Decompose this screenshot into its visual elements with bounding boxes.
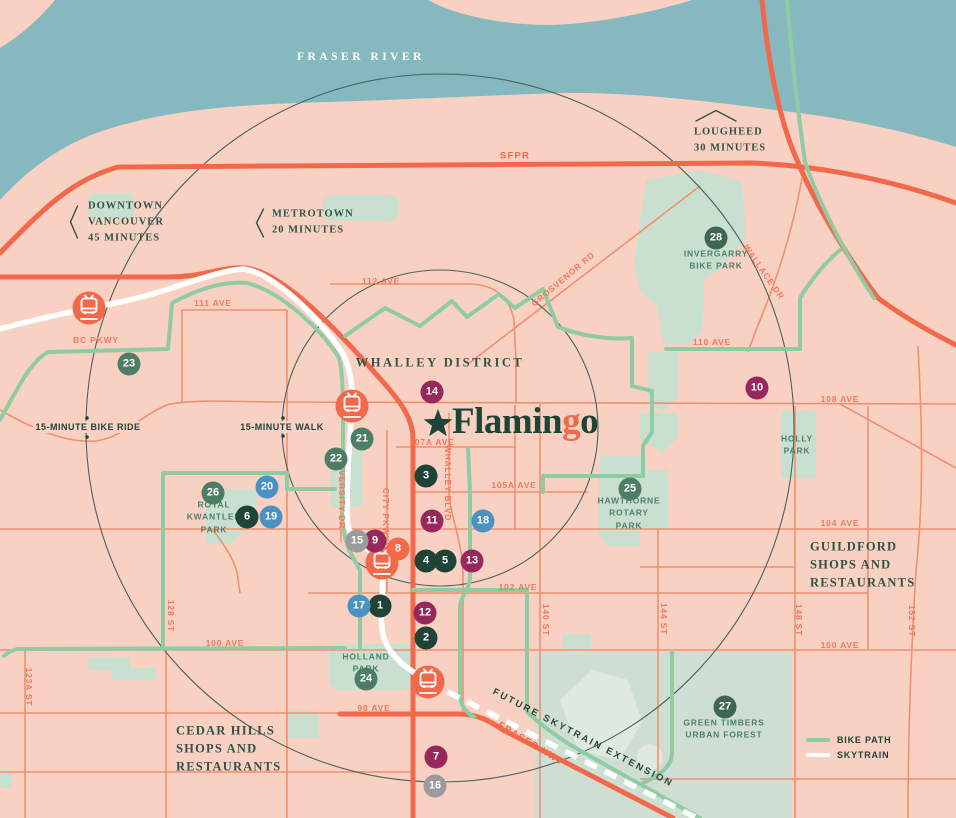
logo-accent-letter: g bbox=[562, 401, 580, 442]
logo-text: Flamin bbox=[452, 401, 562, 442]
skytrain-swatch-icon bbox=[806, 753, 830, 758]
map-legend: BIKE PATH SKYTRAIN bbox=[806, 735, 891, 760]
legend-skytrain: SKYTRAIN bbox=[806, 750, 891, 760]
flamingo-area-map: Flamingo 111 AVE112 AVE110 AVE108 AVE107… bbox=[0, 0, 956, 818]
legend-skytrain-label: SKYTRAIN bbox=[837, 750, 889, 760]
bike-path-swatch-icon bbox=[806, 738, 830, 743]
legend-bike-path: BIKE PATH bbox=[806, 735, 891, 745]
legend-bike-label: BIKE PATH bbox=[837, 735, 891, 745]
logo-text: o bbox=[580, 401, 598, 442]
flamingo-logo: Flamingo bbox=[452, 403, 598, 440]
